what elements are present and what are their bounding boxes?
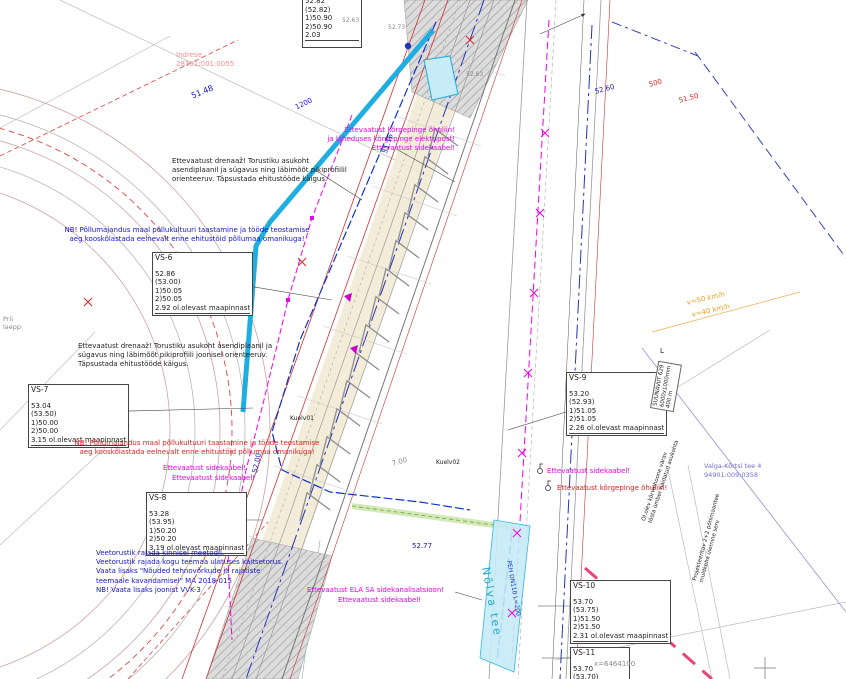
elevation-value: 2.03 <box>305 31 359 41</box>
note-line: aeg kooskõlastada eelnevalt enne ehitust… <box>36 235 338 244</box>
note-line: ja läheduses kõrgepinge elektripost! <box>250 135 455 144</box>
note-line: Veetorustik rajada kinnisel meetodil. <box>96 549 283 558</box>
elevation-value: 53.04 <box>31 402 126 411</box>
culvert-label: Kuelv02 <box>436 459 460 467</box>
box-id: VS-8 <box>149 494 244 503</box>
spot-elevation: 52.63 <box>466 71 483 79</box>
culvert-label: Kuelv01 <box>290 415 314 423</box>
elevation-value: (53.70) <box>573 673 627 679</box>
node-dot <box>405 43 411 49</box>
site-plan-canvas: 52.82 (52.82) 1)50.90 2)50.90 2.03 VS-6 … <box>0 0 846 679</box>
side-cable-note-2: Ettevaatust sidekaabel! <box>172 474 255 483</box>
elevation-value: 1)51.50 <box>573 615 668 624</box>
box-id: VS-7 <box>31 386 126 395</box>
elevation-value: 1)50.05 <box>155 287 250 296</box>
parcel-label-right: Valga-Kõrtsi tee 4 94901:009:0358 <box>704 462 761 480</box>
elevation-value: 53.28 <box>149 510 244 519</box>
drainage-note-mid: Ettevaatust drenaaž! Torustiku asukoht a… <box>78 342 272 370</box>
agriculture-note-red: NB! Põllumajandus maal põllukultuuri taa… <box>46 439 348 457</box>
road-name-fragment: laepp <box>3 323 21 331</box>
elevation-value: (53.50) <box>31 410 126 419</box>
hv-warning-top-note: Ettevaatust kõrgepinge õhuliin! ja lähed… <box>250 126 455 154</box>
vs-8-box: VS-8 53.28 (53.95) 1)50.20 2)50.20 3.19 … <box>146 492 247 556</box>
box-id: VS-11 <box>573 649 627 658</box>
spot-elevation: 52.73 <box>388 24 405 32</box>
elevation-value: 2.26 ol.olevast maapinnast <box>569 424 664 434</box>
ela-cable-note: Ettevaatust ELA SA sidekanalisatsioon! <box>307 586 444 595</box>
elevation-value: 2.31 ol.olevast maapinnast <box>573 632 668 642</box>
note-line: Täpsustada ehitustööde käigus. <box>78 360 272 369</box>
grid-coordinate-label: x=6464100 <box>594 660 635 669</box>
elevation-value: 53.70 <box>573 598 668 607</box>
elevation-value: 1)50.00 <box>31 419 126 428</box>
note-line: Ettevaatust drenaaž! Torustiku asukoht a… <box>78 342 272 351</box>
note-line: teemaale kavandamisel" MA 2018-015 <box>96 577 283 586</box>
agriculture-note-blue: NB! Põllumajandus maal põllukultuuri taa… <box>36 226 338 244</box>
note-line: NB! Põllumajandus maal põllukultuuri taa… <box>36 226 338 235</box>
vs-10-box: VS-10 53.70 (53.75) 1)51.50 2)51.50 2.31… <box>570 580 671 644</box>
green-verge <box>352 506 516 528</box>
elevation-value: 2)50.00 <box>31 427 126 436</box>
box-id: VS-9 <box>569 374 664 383</box>
vs-6-box: VS-6 52.86 (53.00) 1)50.05 2)50.05 2.92 … <box>152 252 253 316</box>
note-line: NB! Põllumajandus maal põllukultuuri taa… <box>46 439 348 448</box>
note-line: Vaata lisaks "Nõuded tehnovõrkude ja raj… <box>96 567 283 576</box>
parcel-name: Indrese <box>176 51 234 60</box>
note-line: Ettevaatust kõrgepinge õhuliin! <box>250 126 455 135</box>
elevation-value: 2)50.05 <box>155 295 250 304</box>
elevation-value: 1)50.20 <box>149 527 244 536</box>
spot-elevation: 52.63 <box>342 17 359 25</box>
note-line: Veetorustik rajada kogu teemaa ulatuses … <box>96 558 283 567</box>
side-cable-note-right: Ettevaatust sidekaabel! <box>547 467 630 476</box>
note-line: orienteeruv. Täpsustada ehitustööde käig… <box>172 175 347 184</box>
side-cable-note-1: Ettevaatust sidekaabel! <box>163 464 246 473</box>
drainage-note-top: Ettevaatust drenaaž! Torustiku asukoht a… <box>172 157 347 185</box>
elevation-value: (52.82) <box>305 6 359 15</box>
water-pipe-note: Veetorustik rajada kinnisel meetodil. Ve… <box>96 549 283 595</box>
parcel-label-left: Indrese 28301:001:0055 <box>176 51 234 69</box>
elevation-label: 52.77 <box>412 542 432 551</box>
box-id: VS-6 <box>155 254 250 263</box>
elevation-value: (53.75) <box>573 606 668 615</box>
elevation-value: 2)51.05 <box>569 415 664 424</box>
note-line: Ettevaatust sidekaabel! <box>250 144 455 153</box>
ela-cable-note-2: Ettevaatust sidekaabel! <box>338 596 421 605</box>
elevation-value: (53.00) <box>155 278 250 287</box>
elevation-value: 2.92 ol.olevast maapinnast <box>155 304 250 314</box>
elevation-value: 52.86 <box>155 270 250 279</box>
note-line: NB! Vaata lisaks joonist VVK-3 <box>96 586 283 595</box>
parcel-number: 94901:009:0358 <box>704 471 761 480</box>
parcel-name: Valga-Kõrtsi tee 4 <box>704 462 761 471</box>
note-line: aeg kooskõlastada eelnevalt enne ehitust… <box>46 448 348 457</box>
elevation-value: 2)50.20 <box>149 535 244 544</box>
misc-letter-label: L <box>660 347 664 356</box>
note-line: sügavus ning läbimõõt pikiprofiili jooni… <box>78 351 272 360</box>
elevation-value: 2)51.50 <box>573 623 668 632</box>
elevation-value: (53.95) <box>149 518 244 527</box>
grid-cross <box>754 657 776 679</box>
note-line: Ettevaatust drenaaž! Torustiku asukoht <box>172 157 347 166</box>
note-line: asendiplaanil ja sügavus ning läbimõõt p… <box>172 166 347 175</box>
elevation-value: 53.20 <box>569 390 664 399</box>
parcel-number: 28301:001:0055 <box>176 60 234 69</box>
box-id: VS-10 <box>573 582 668 591</box>
